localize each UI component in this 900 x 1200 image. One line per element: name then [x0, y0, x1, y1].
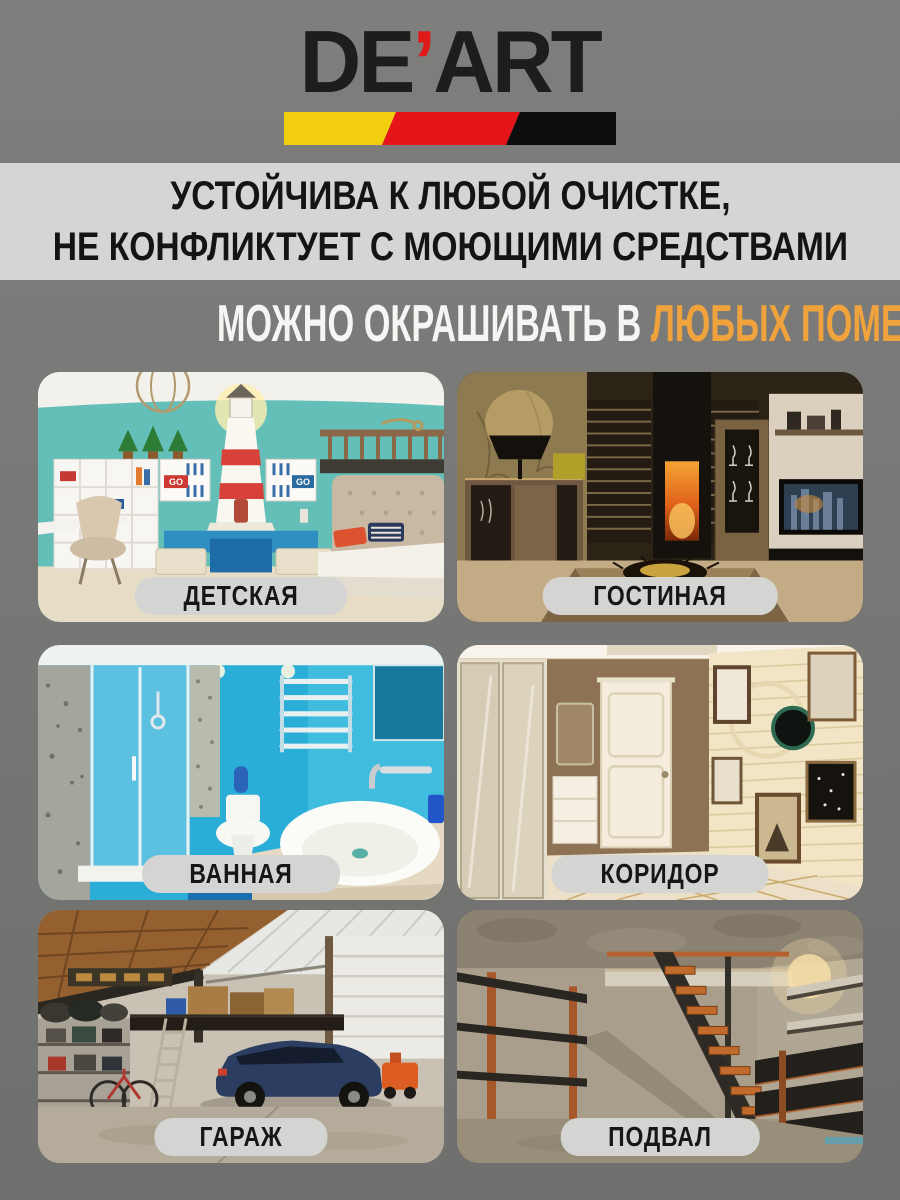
room-label: КОРИДОР	[601, 858, 720, 890]
claim-banner: УСТОЙЧИВА К ЛЮБОЙ ОЧИСТКЕ, НЕ КОНФЛИКТУЕ…	[0, 163, 900, 280]
room-label: ГАРАЖ	[200, 1121, 283, 1153]
claim-line-2: НЕ КОНФЛИКТУЕТ С МОЮЩИМИ СРЕДСТВАМИ	[52, 222, 847, 273]
room-label-pill: ДЕТСКАЯ	[135, 577, 347, 615]
room-card-garage: ГАРАЖ	[38, 910, 444, 1163]
svg-text:GO: GO	[296, 477, 310, 487]
room-label: ГОСТИНАЯ	[593, 580, 726, 612]
room-label: ПОДВАЛ	[608, 1121, 712, 1153]
room-card-living: ГОСТИНАЯ	[457, 372, 863, 622]
brand-logo-part1: DE	[300, 12, 413, 111]
headline-prefix: МОЖНО ОКРАШИВАТЬ В	[217, 295, 651, 353]
room-label-pill: КОРИДОР	[551, 855, 768, 893]
room-card-basement: ПОДВАЛ	[457, 910, 863, 1163]
room-label-pill: ВАННАЯ	[142, 855, 340, 893]
svg-text:GO: GO	[169, 477, 183, 487]
brand-logo-part2: ART	[433, 12, 600, 111]
brand-logo-apostrophe: ’	[413, 12, 434, 111]
room-card-hallway: КОРИДОР	[457, 645, 863, 900]
room-card-kids: GO GO	[38, 372, 444, 622]
brand-tricolor-stripe	[284, 112, 616, 145]
section-headline: МОЖНО ОКРАШИВАТЬ В ЛЮБЫХ ПОМЕЩЕНИЯХ	[0, 299, 900, 349]
headline-highlight: ЛЮБЫХ ПОМЕЩЕНИЯХ	[651, 295, 900, 353]
room-card-bath: ВАННАЯ	[38, 645, 444, 900]
room-label-pill: ПОДВАЛ	[561, 1118, 760, 1156]
product-card-image: DE’ART УСТОЙЧИВА К ЛЮБОЙ ОЧИСТКЕ, НЕ КОН…	[0, 0, 900, 1200]
brand-logo-text: DE’ART	[300, 22, 600, 103]
room-label-pill: ГАРАЖ	[154, 1118, 327, 1156]
room-label: ВАННАЯ	[189, 858, 292, 890]
claim-line-1: УСТОЙЧИВА К ЛЮБОЙ ОЧИСТКЕ,	[170, 171, 730, 222]
room-label: ДЕТСКАЯ	[183, 580, 298, 612]
room-label-pill: ГОСТИНАЯ	[543, 577, 778, 615]
brand-logo: DE’ART	[0, 22, 900, 145]
